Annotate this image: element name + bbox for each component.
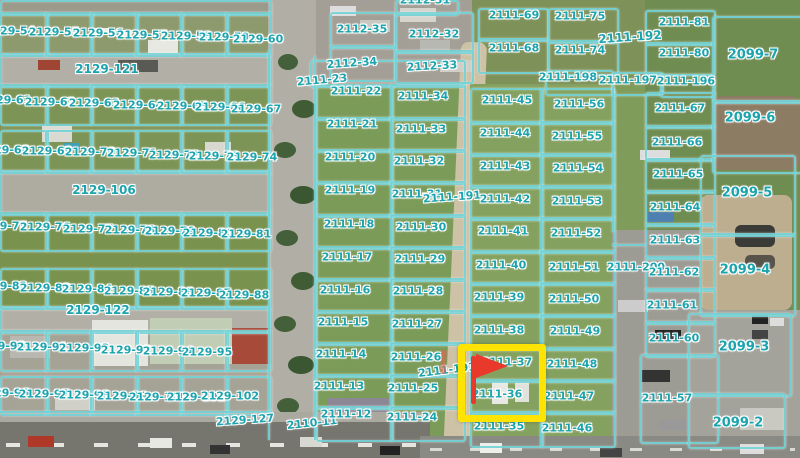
parcel-label: 2111-13 (314, 380, 365, 393)
parcel-label: 2112-32 (409, 28, 460, 41)
parcel-label: 2112-35 (337, 23, 388, 36)
parcel-label: 2111-32 (394, 155, 445, 168)
parcel-label: 2129-60 (233, 33, 284, 46)
parcel-label: 2099-7 (728, 48, 779, 63)
aerial-car (150, 438, 172, 448)
parcel-label: 2111-48 (547, 358, 598, 371)
parcel-label: 2111-55 (552, 130, 603, 143)
parcel-label: 2111-17 (322, 251, 373, 264)
aerial-truck-red (28, 436, 54, 447)
tree-icon (292, 100, 316, 118)
tree-icon (276, 230, 298, 246)
boundary-line (612, 84, 614, 232)
parcel-label: 2111-49 (550, 325, 601, 338)
parcel-label: 2111-44 (480, 127, 531, 140)
parcel-label: 2111-40 (476, 259, 527, 272)
parcel-boundary[interactable] (0, 170, 272, 216)
aerial-truck (618, 300, 648, 312)
parcel-label: 2129-81 (221, 228, 272, 241)
tree-icon (278, 54, 298, 70)
parcel-label: 2111-16 (320, 284, 371, 297)
tree-icon (291, 272, 315, 290)
parcel-label: 2111-38 (474, 324, 525, 337)
parcel-label: 2111-45 (482, 94, 533, 107)
parcel-label: 2129-74 (227, 151, 278, 164)
parcel-boundary[interactable] (688, 313, 792, 397)
parcel-label: 2099-2 (713, 416, 764, 431)
parcel-label: 2099-6 (725, 111, 776, 126)
parcel-label: 2111-39 (474, 291, 525, 304)
parcel-label: 2111-197 (599, 74, 657, 87)
parcel-label: 2129-122 (66, 303, 129, 317)
parcel-label: 2129-95 (182, 346, 233, 359)
parcel-label: 2111-34 (398, 90, 449, 103)
tree-icon (290, 186, 316, 204)
parcel-label: 2111-29 (395, 253, 446, 266)
parcel-label: 2111-19 (325, 184, 376, 197)
parcel-label: 2111-62 (649, 266, 700, 279)
parcel-label: 2111-80 (659, 47, 710, 60)
parcel-label: 2111-51 (549, 261, 600, 274)
parcel-label: 2111-68 (489, 42, 540, 55)
parcel-label: 2111-52 (551, 227, 602, 240)
parcel-label: 2111-66 (652, 136, 703, 149)
parcel-label: 2111-28 (393, 285, 444, 298)
parcel-label: 2111-65 (653, 168, 704, 181)
parcel-label: 2111-43 (480, 160, 531, 173)
parcel-label: 2111-42 (480, 193, 531, 206)
parcel-label: 2111-53 (552, 195, 603, 208)
tree-icon (288, 356, 314, 374)
parcel-label: 2111-61 (647, 299, 698, 312)
parcel-label: 2111-18 (324, 218, 375, 231)
flag-icon[interactable] (476, 354, 508, 378)
parcel-label: 2129-102 (201, 390, 259, 403)
aerial-car-dark (600, 448, 622, 457)
parcel-label: 2111-64 (650, 201, 701, 214)
parcel-label: 2111-26 (391, 351, 442, 364)
parcel-label: 2129-56 (73, 27, 124, 40)
parcel-label: 2129-106 (72, 183, 135, 197)
parcel-label: 2111-74 (555, 44, 606, 57)
parcel-label: 2111-69 (489, 9, 540, 22)
parcel-label: 2111-33 (396, 123, 447, 136)
parcel-label: 2111-27 (392, 318, 443, 331)
parcel-label: 2111-198 (539, 71, 597, 84)
parcel-label: 2111-30 (396, 221, 447, 234)
parcel-label: 2111-57 (642, 392, 693, 405)
parcel-label: 2129-88 (219, 289, 270, 302)
aerial-car-dark (210, 445, 230, 454)
parcel-label: 2111-20 (325, 151, 376, 164)
parcel-label: 2111-75 (555, 10, 606, 23)
boundary-line (0, 411, 272, 413)
parcel-label: 2099-5 (722, 186, 773, 201)
parcel-label: 2111-47 (544, 390, 595, 403)
parcel-label: 2129-55 (29, 26, 80, 39)
parcel-label: 2129-67 (231, 103, 282, 116)
parcel-label: 2111-50 (549, 293, 600, 306)
parcel-label: 2099-3 (719, 340, 770, 355)
boundary-line (612, 244, 646, 246)
parcel-label: 2111-14 (316, 348, 367, 361)
parcel-label: 2129-121 (75, 62, 138, 76)
parcel-label: 2129-57 (117, 29, 168, 42)
parcel-label: 2111-46 (542, 422, 593, 435)
parcel-label: 2111-22 (331, 85, 382, 98)
parcel-label: 2111-60 (649, 332, 700, 345)
aerial-car-dark (380, 446, 400, 455)
parcel-label: 2111-15 (318, 316, 369, 329)
parcel-label: 2111-21 (327, 118, 378, 131)
parcel-label: 2111-41 (478, 225, 529, 238)
parcel-label: 2111-81 (659, 16, 710, 29)
tree-icon (274, 316, 296, 332)
parcel-label: 2111-24 (387, 411, 438, 424)
parcel-label: 2111-63 (650, 234, 701, 247)
parcel-label: 2111-196 (657, 75, 715, 88)
parcel-label: 2111-67 (655, 102, 706, 115)
parcel-label: 2111-56 (554, 98, 605, 111)
map-canvas[interactable]: 2129-542129-552129-562129-572129-582129-… (0, 0, 800, 458)
parcel-label: 2111-25 (388, 382, 439, 395)
parcel-label: 2129-62 (25, 96, 76, 109)
parcel-label: 2111-54 (553, 162, 604, 175)
parcel-label: 2099-4 (720, 263, 771, 278)
parcel-label: 2112-31 (400, 0, 451, 7)
parcel-label: 2129-63 (69, 97, 120, 110)
parcel-label: 2129-64 (113, 99, 164, 112)
parcel-label: 2111-12 (321, 408, 372, 421)
parcel-label: 2112-33 (406, 58, 457, 74)
